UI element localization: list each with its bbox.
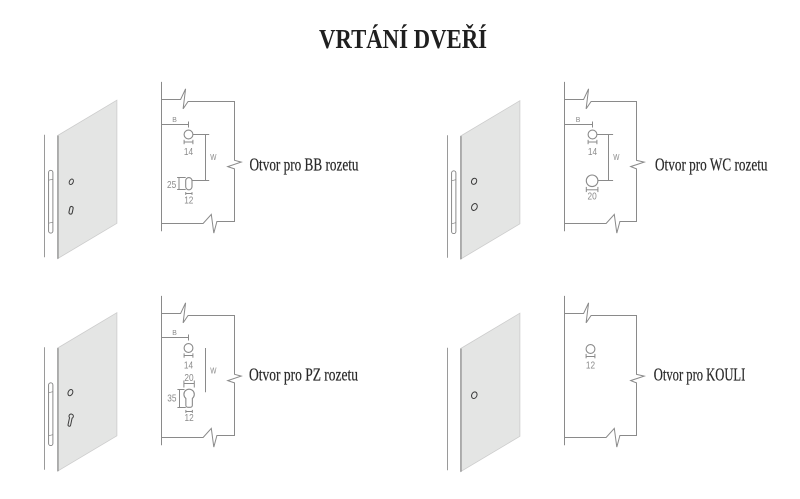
svg-text:B: B (172, 328, 177, 337)
svg-text:W: W (210, 365, 216, 375)
svg-text:Otvor pro KOULI: Otvor pro KOULI (654, 364, 746, 384)
svg-text:35: 35 (167, 393, 176, 405)
svg-text:B: B (172, 115, 177, 124)
svg-text:VRTÁNÍ DVEŘÍ: VRTÁNÍ DVEŘÍ (319, 23, 487, 54)
svg-text:14: 14 (184, 146, 193, 158)
svg-text:Otvor pro BB rozetu: Otvor pro BB rozetu (250, 154, 359, 174)
svg-text:W: W (210, 152, 216, 162)
svg-text:25: 25 (167, 179, 176, 191)
svg-text:20: 20 (184, 372, 193, 384)
svg-text:Otvor pro PZ rozetu: Otvor pro PZ rozetu (249, 365, 358, 385)
svg-text:12: 12 (185, 412, 194, 424)
svg-text:Otvor pro WC rozetu: Otvor pro WC rozetu (655, 154, 768, 174)
svg-text:12: 12 (586, 360, 595, 372)
svg-text:12: 12 (184, 194, 193, 206)
svg-text:W: W (613, 152, 619, 162)
svg-text:20: 20 (588, 191, 597, 203)
svg-text:14: 14 (588, 146, 597, 158)
svg-text:14: 14 (184, 360, 193, 372)
svg-text:B: B (576, 115, 581, 124)
